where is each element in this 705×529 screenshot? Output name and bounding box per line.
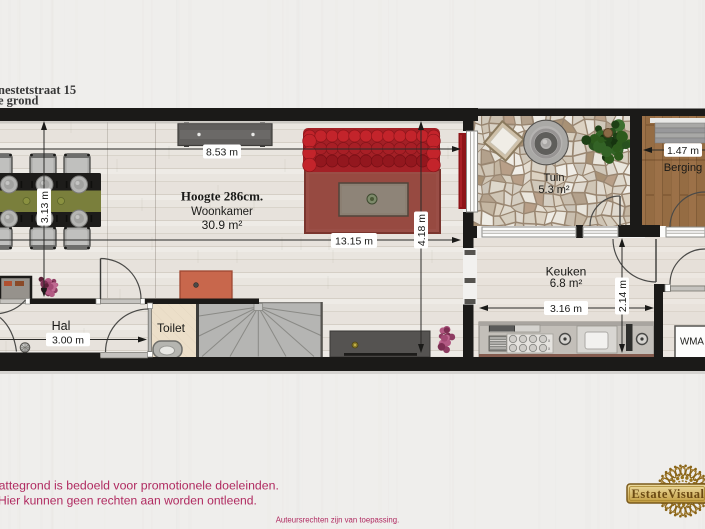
svg-text:30.9 m²: 30.9 m² xyxy=(202,218,243,232)
svg-text:2.14 m: 2.14 m xyxy=(617,280,629,312)
svg-text:3.13 m: 3.13 m xyxy=(39,191,51,223)
svg-text:Woonkamer: Woonkamer xyxy=(191,206,253,218)
svg-text:1.47 m: 1.47 m xyxy=(667,145,699,157)
svg-text:Hal: Hal xyxy=(52,319,71,333)
svg-text:Keuken: Keuken xyxy=(546,265,587,279)
svg-text:Toilet: Toilet xyxy=(157,321,186,335)
svg-text:5.3 m²: 5.3 m² xyxy=(538,184,570,196)
svg-text:Hier kunnen geen rechten aan w: Hier kunnen geen rechten aan worden ontl… xyxy=(0,494,257,508)
svg-text:13.15 m: 13.15 m xyxy=(335,236,373,248)
svg-text:8.53 m: 8.53 m xyxy=(206,147,238,159)
svg-text:Auteursrechten zijn van toepas: Auteursrechten zijn van toepassing. xyxy=(276,516,400,525)
svg-text:Hoogte 286cm.: Hoogte 286cm. xyxy=(181,189,263,204)
svg-text:EstateVisual: EstateVisual xyxy=(632,487,705,501)
svg-text:Tuin: Tuin xyxy=(544,172,565,184)
svg-text:e grond: e grond xyxy=(0,94,38,108)
svg-text:3.00 m: 3.00 m xyxy=(52,335,84,347)
svg-text:WMA: WMA xyxy=(680,337,704,348)
svg-text:4.18 m: 4.18 m xyxy=(416,214,428,246)
svg-text:3.16 m: 3.16 m xyxy=(550,303,582,315)
svg-text:6.8 m²: 6.8 m² xyxy=(550,278,583,290)
svg-text:Berging: Berging xyxy=(664,162,703,174)
svg-text:plattegrond is bedoeld voor pr: plattegrond is bedoeld voor promotionele… xyxy=(0,479,279,493)
